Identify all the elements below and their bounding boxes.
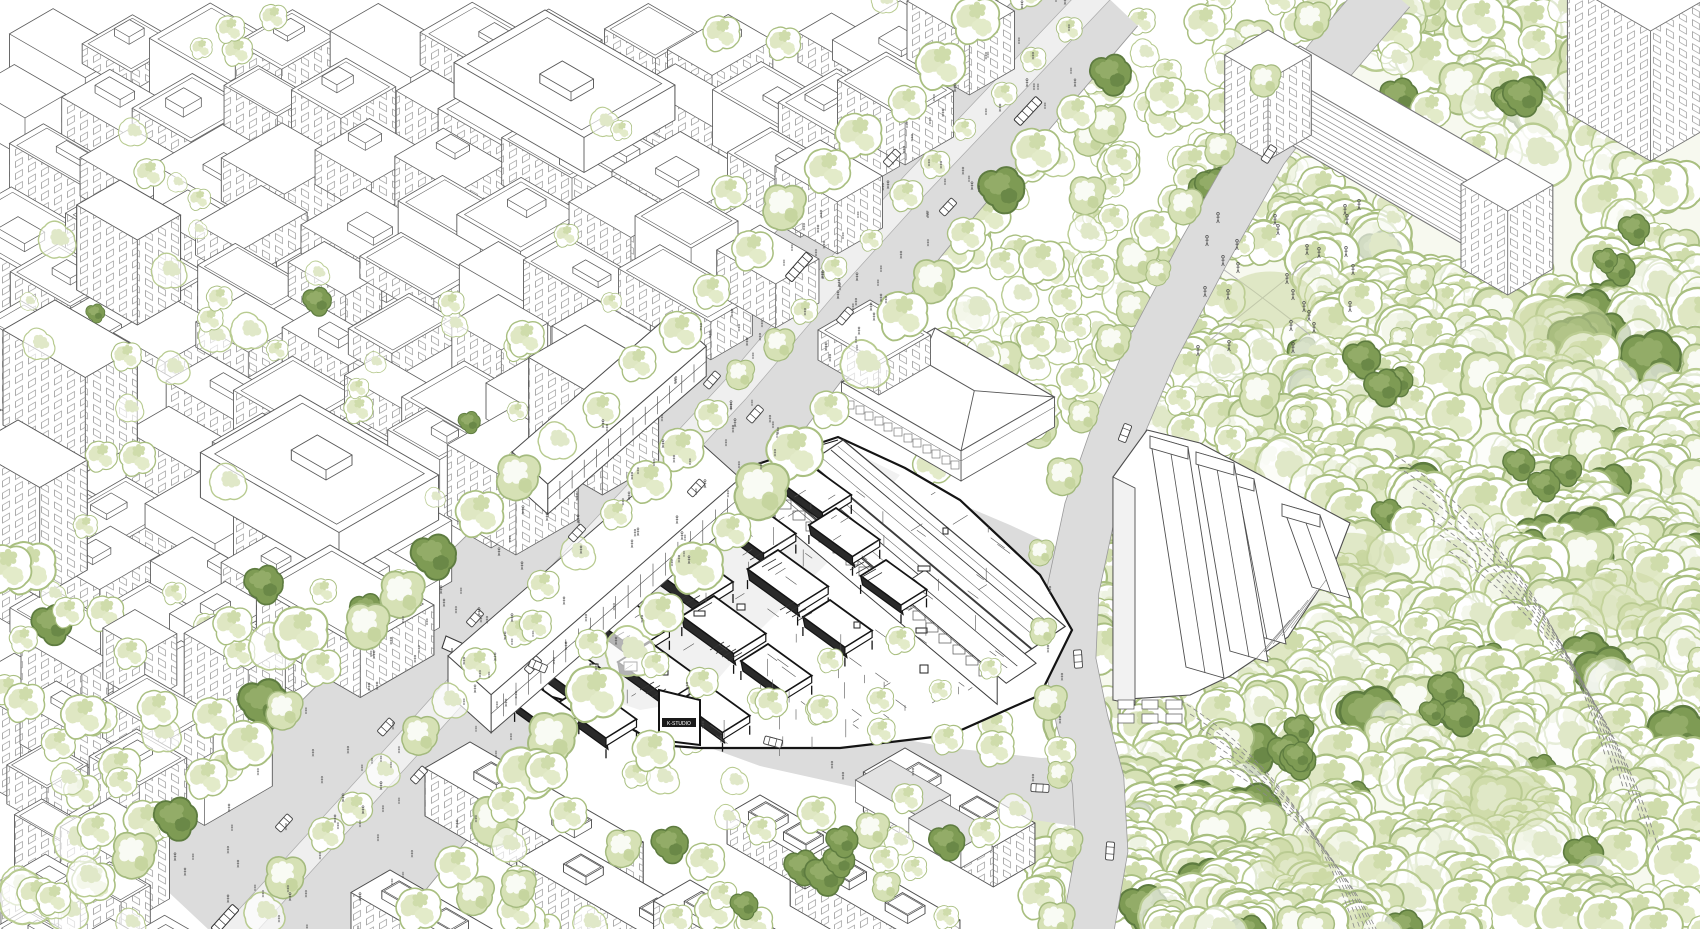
svg-text:K-STUDIO: K-STUDIO bbox=[667, 721, 691, 727]
